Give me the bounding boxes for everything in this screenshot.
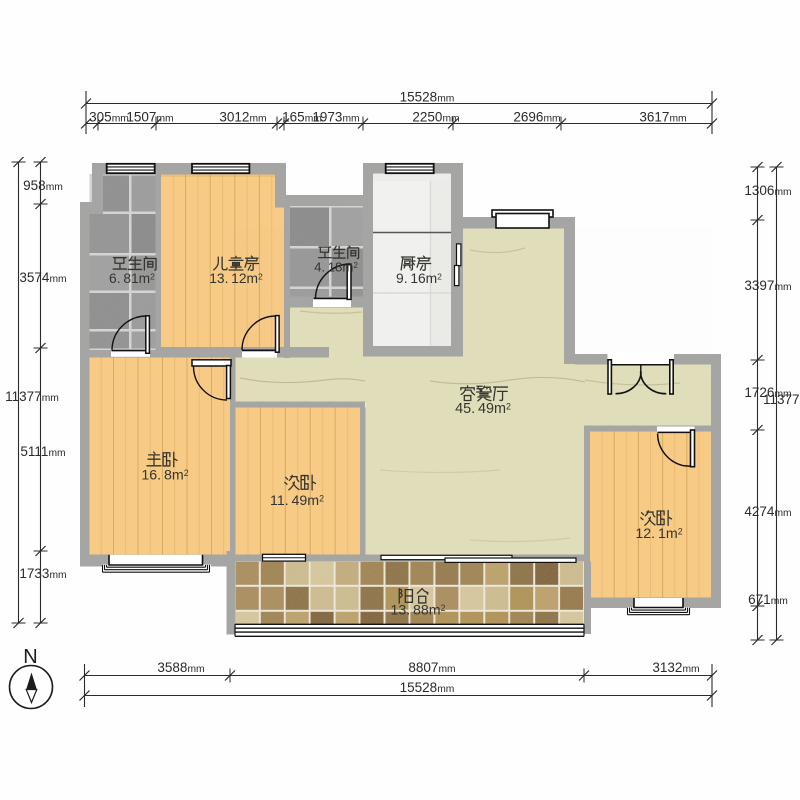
- svg-text:4. 18m2: 4. 18m2: [314, 260, 358, 275]
- svg-text:6. 81m2: 6. 81m2: [109, 271, 155, 286]
- svg-text:11. 49m2: 11. 49m2: [270, 493, 324, 509]
- svg-text:12. 1m2: 12. 1m2: [635, 526, 682, 542]
- svg-text:9. 16m2: 9. 16m2: [396, 271, 442, 286]
- svg-text:13. 88m2: 13. 88m2: [390, 603, 445, 619]
- svg-text:11377mm: 11377mm: [763, 392, 800, 407]
- svg-text:16. 8m2: 16. 8m2: [141, 468, 188, 484]
- svg-text:45. 49m2: 45. 49m2: [455, 401, 511, 417]
- svg-text:N: N: [23, 646, 37, 668]
- svg-text:13. 12m2: 13. 12m2: [209, 271, 263, 286]
